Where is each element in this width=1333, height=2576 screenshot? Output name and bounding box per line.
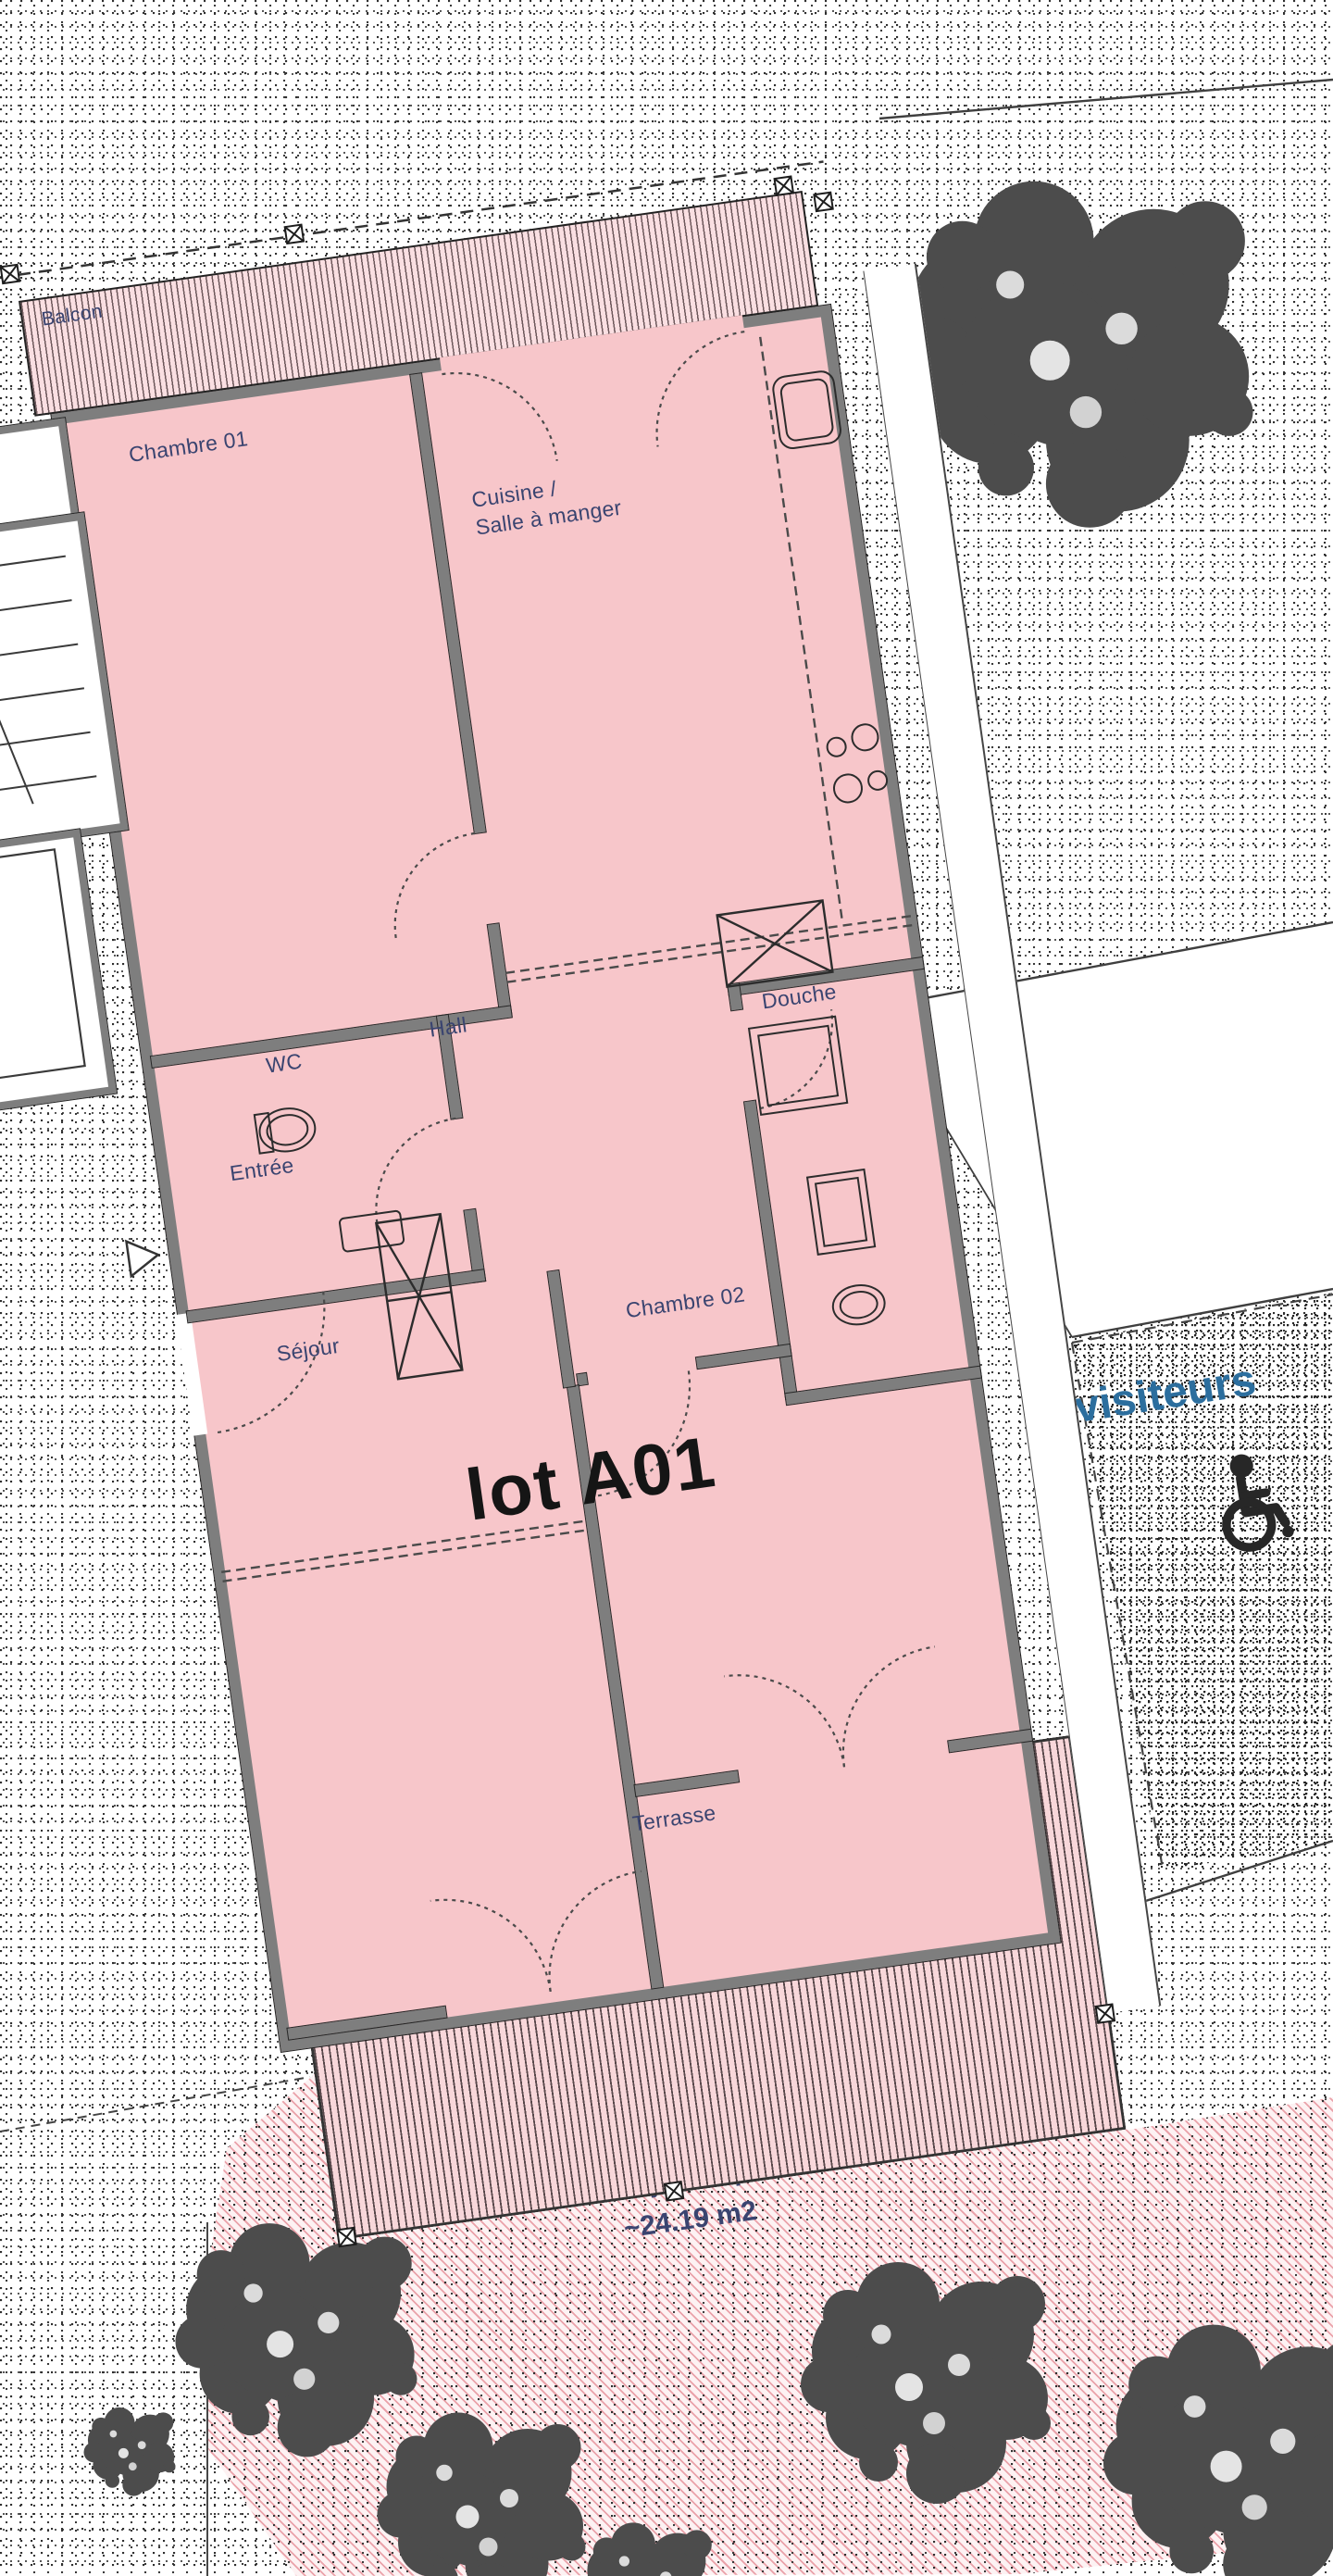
site-plan-page: visiteurs surface jardin privatif ~24.19… [0,0,1333,2576]
tree-canopy-icon [84,2407,176,2496]
room-label-wc: WC [265,1049,304,1079]
tree-canopy-icon [581,2522,715,2576]
room-label-hall: Hall [428,1012,468,1042]
duct-shaft-icon [341,900,880,1379]
